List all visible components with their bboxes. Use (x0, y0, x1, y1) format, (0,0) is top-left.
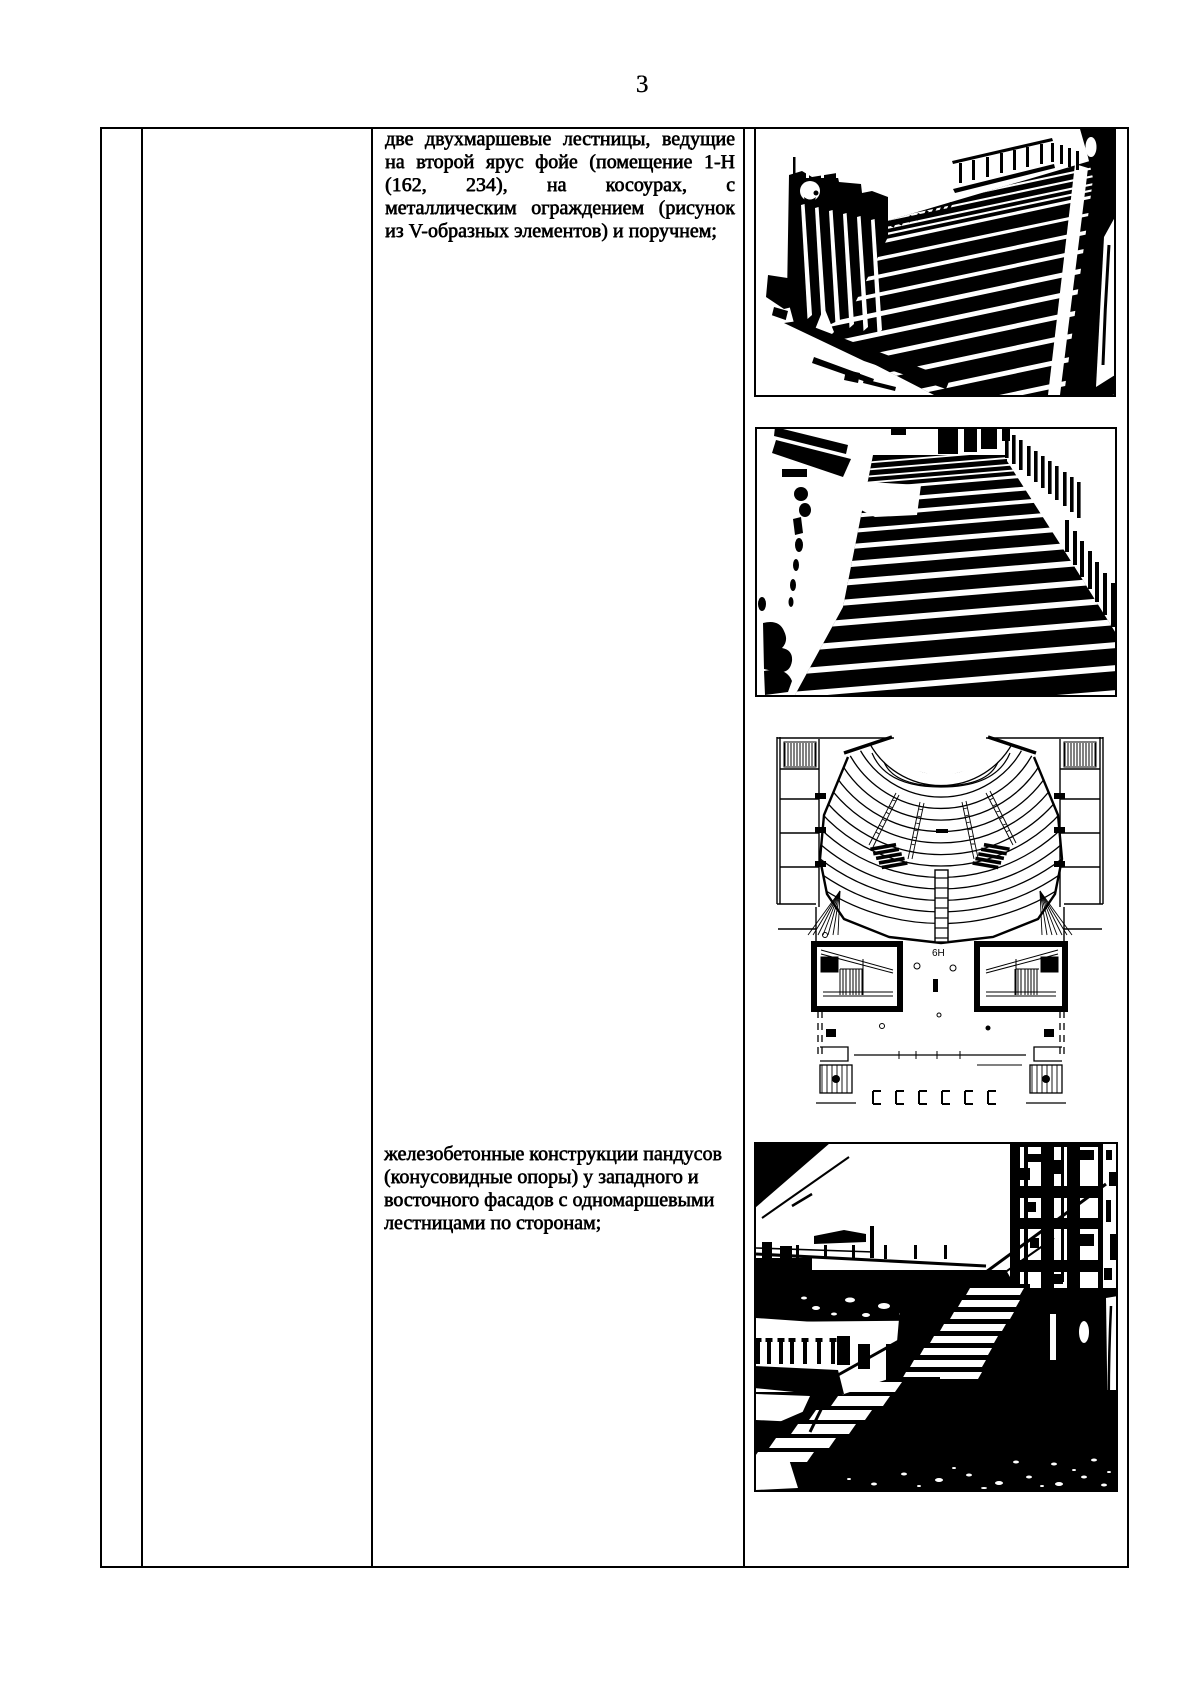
svg-text:6Н: 6Н (932, 948, 945, 959)
